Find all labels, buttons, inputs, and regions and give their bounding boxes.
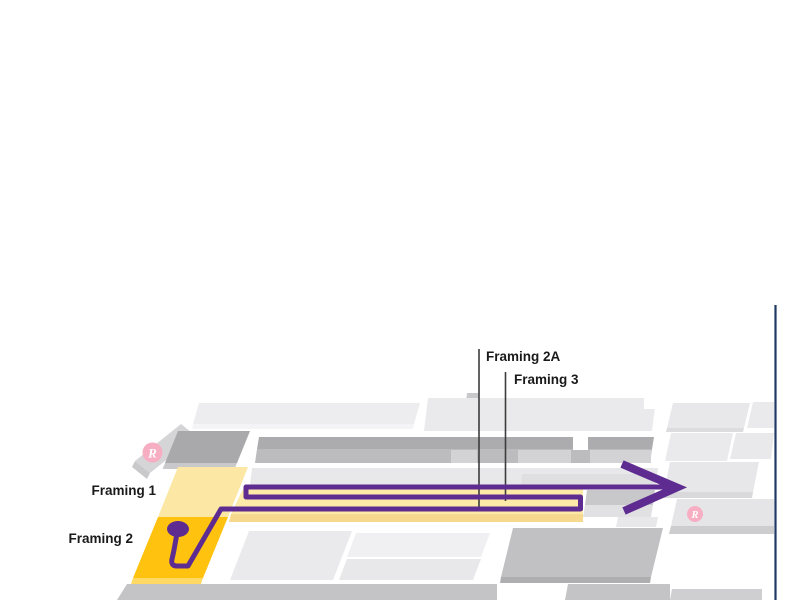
fixture-block-gray [163, 431, 250, 469]
walkway-block [670, 589, 762, 600]
fixture-block [671, 499, 774, 526]
store-map-canvas: R R [0, 0, 800, 600]
fixture-block [165, 431, 250, 463]
fixture-block [501, 528, 663, 577]
fixture-block [193, 403, 420, 424]
walkway-block [565, 584, 670, 600]
fixture-block [667, 403, 750, 428]
fixture-gap [573, 436, 588, 450]
label-framing-3: Framing 3 [514, 372, 579, 387]
aisle-highlight-edge [229, 514, 583, 522]
fixture-notch [644, 396, 659, 409]
label-framing-2: Framing 2 [68, 531, 133, 546]
fixture-row-middle [250, 436, 658, 487]
fixture-block [616, 517, 658, 527]
fixture-block [424, 398, 656, 431]
label-framing-1: Framing 1 [91, 483, 156, 498]
department-framing-2-face [131, 578, 203, 584]
location-pin-icon [167, 521, 189, 537]
fixture-inset [518, 450, 571, 463]
walkway-block [117, 584, 497, 600]
fixture-row-top [192, 393, 659, 431]
fixture-cluster-right: R [663, 402, 774, 534]
fixture-block [339, 559, 481, 580]
fixture-block-face [669, 526, 774, 534]
fixture-block [257, 437, 654, 449]
fixture-block [665, 433, 733, 461]
fixture-block [230, 531, 352, 580]
fixture-block [730, 433, 774, 459]
fixture-row-aisle-right [583, 490, 658, 527]
fixture-inset [590, 450, 651, 463]
fixture-block-face [500, 577, 651, 583]
fixture-block [347, 533, 490, 557]
store-map: R R [0, 0, 800, 600]
fixture-inset [451, 450, 477, 463]
label-framing-2a: Framing 2A [486, 349, 561, 364]
fixture-block-face [666, 428, 744, 432]
fixture-block-face [192, 424, 414, 429]
restroom-badge-letter: R [690, 510, 698, 521]
fixture-block-face [663, 492, 753, 498]
restroom-badge-letter: R [147, 446, 157, 461]
fixture-block [747, 402, 774, 428]
